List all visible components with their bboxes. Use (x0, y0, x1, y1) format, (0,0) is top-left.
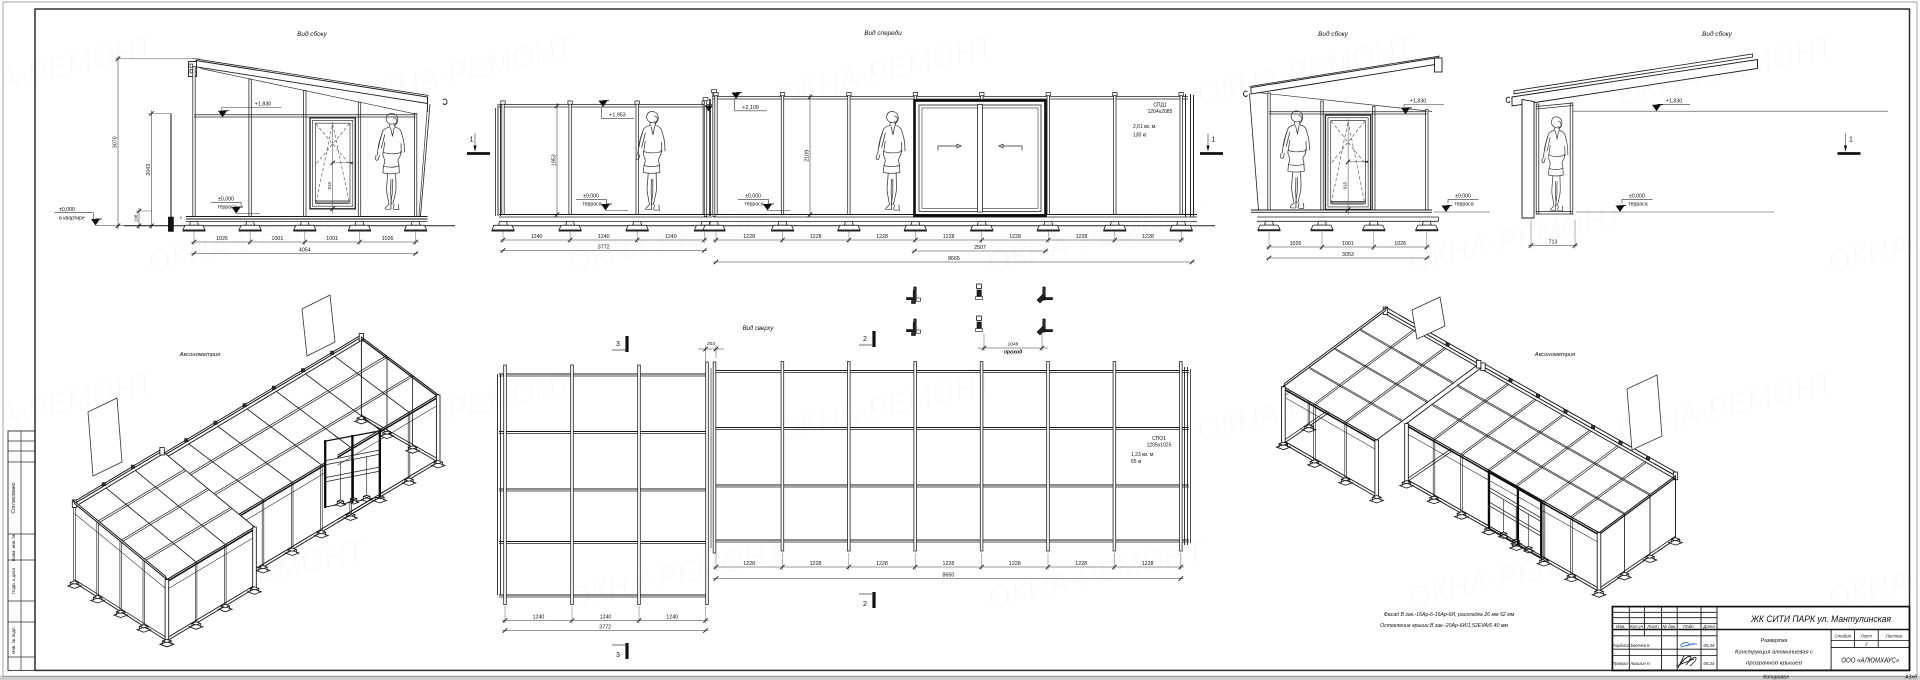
svg-text:А3х6: А3х6 (1904, 674, 1917, 680)
svg-text:1026: 1026 (216, 236, 228, 242)
svg-text:1001: 1001 (1342, 241, 1354, 247)
svg-text:1228: 1228 (1009, 234, 1021, 240)
svg-text:198: 198 (134, 214, 139, 222)
svg-text:Изм.: Изм. (1616, 624, 1625, 629)
svg-text:Подп. и дата: Подп. и дата (11, 568, 16, 594)
svg-text:65 кг: 65 кг (1131, 459, 1142, 465)
svg-text:3772: 3772 (599, 625, 611, 631)
svg-text:Согласовано: Согласовано (11, 482, 17, 513)
svg-text:1205х1025: 1205х1025 (1147, 443, 1172, 449)
svg-text:915: 915 (1343, 181, 1348, 189)
svg-text:±0,000: ±0,000 (218, 196, 234, 202)
svg-text:±0,000: ±0,000 (745, 193, 761, 199)
svg-text:Аксонометрия: Аксонометрия (179, 352, 221, 358)
svg-text:1240: 1240 (666, 615, 678, 621)
svg-text:Вид сбоку: Вид сбоку (1702, 30, 1732, 38)
svg-text:Евсечев К.: Евсечев К. (1631, 643, 1651, 648)
svg-text:1240: 1240 (533, 615, 545, 621)
svg-text:2,61 кв. м.: 2,61 кв. м. (1133, 124, 1157, 130)
svg-text:2109: 2109 (805, 150, 811, 162)
svg-text:3053: 3053 (1342, 252, 1354, 258)
svg-text:1228: 1228 (1142, 561, 1154, 567)
svg-text:терраса: терраса (582, 202, 601, 208)
svg-text:1001: 1001 (326, 236, 338, 242)
svg-text:+1,830: +1,830 (1666, 98, 1683, 104)
svg-text:Лист: Лист (1860, 633, 1873, 638)
svg-text:05.24: 05.24 (1704, 643, 1716, 648)
svg-text:СПО1: СПО1 (1152, 436, 1166, 442)
svg-text:Инв. № подл.: Инв. № подл. (11, 626, 16, 653)
svg-text:терраса: терраса (1454, 202, 1473, 208)
svg-text:Разработал: Разработал (1613, 643, 1629, 648)
svg-text:±0,000: ±0,000 (1629, 193, 1645, 199)
svg-text:прозрачной крышей: прозрачной крышей (1746, 660, 1802, 667)
svg-text:1228: 1228 (943, 561, 955, 567)
svg-text:+1,830: +1,830 (255, 102, 272, 108)
svg-text:2: 2 (863, 601, 867, 608)
svg-text:1204х2085: 1204х2085 (1148, 109, 1173, 115)
svg-text:Стадия: Стадия (1834, 633, 1851, 638)
svg-text:1240: 1240 (665, 234, 677, 240)
svg-text:2: 2 (1864, 642, 1868, 647)
svg-text:1228: 1228 (743, 234, 755, 240)
svg-text:1240: 1240 (531, 234, 543, 240)
svg-text:1228: 1228 (1009, 561, 1021, 567)
svg-text:ЖК СИТИ ПАРК ул. Мантулинская: ЖК СИТИ ПАРК ул. Мантулинская (1750, 614, 1891, 624)
svg-text:Вид сверху: Вид сверху (743, 326, 775, 332)
svg-text:1953: 1953 (552, 154, 558, 166)
svg-text:1048: 1048 (1008, 342, 1019, 348)
svg-text:+1,830: +1,830 (1410, 99, 1427, 105)
svg-text:2043: 2043 (146, 164, 152, 176)
svg-text:СПД1: СПД1 (1153, 103, 1167, 109)
svg-text:№ док.: № док. (1662, 624, 1676, 629)
svg-text:ООО «АЛЮМХАУС»: ООО «АЛЮМХАУС» (1841, 658, 1899, 665)
svg-text:3: 3 (616, 652, 620, 659)
svg-text:1228: 1228 (943, 234, 955, 240)
svg-text:Конструкция алюминиевая с: Конструкция алюминиевая с (1735, 650, 1813, 656)
svg-text:1228: 1228 (1076, 234, 1088, 240)
svg-text:Кол.уч: Кол.уч (1630, 624, 1644, 629)
svg-text:Развертка: Развертка (1761, 638, 1788, 644)
svg-text:3: 3 (616, 341, 620, 348)
svg-text:терраса: терраса (1628, 202, 1647, 208)
svg-text:Вид сбоку: Вид сбоку (1318, 30, 1348, 38)
svg-text:1228: 1228 (743, 561, 755, 567)
svg-text:1228: 1228 (810, 234, 822, 240)
svg-text:1228: 1228 (876, 234, 888, 240)
svg-text:Аксонометрия: Аксонометрия (1534, 352, 1576, 358)
svg-text:±0,000: ±0,000 (583, 193, 599, 199)
svg-text:8650: 8650 (943, 573, 955, 579)
svg-text:915: 915 (327, 182, 332, 190)
svg-text:1240: 1240 (600, 615, 612, 621)
svg-text:1240: 1240 (598, 234, 610, 240)
svg-text:1026: 1026 (1290, 241, 1302, 247)
svg-text:Копировал: Копировал (1763, 674, 1789, 680)
svg-text:1,23 кв. м.: 1,23 кв. м. (1131, 452, 1155, 458)
svg-text:Взам. инв. №: Взам. инв. № (11, 534, 16, 561)
svg-text:Вид сбоку: Вид сбоку (297, 30, 327, 38)
svg-text:Листов: Листов (1885, 633, 1903, 638)
svg-text:1: 1 (1212, 137, 1216, 144)
svg-text:1228: 1228 (876, 561, 888, 567)
svg-text:+1,953: +1,953 (609, 113, 626, 119)
svg-text:1228: 1228 (1075, 561, 1087, 567)
svg-text:1228: 1228 (810, 561, 822, 567)
svg-text:1026: 1026 (1394, 241, 1406, 247)
svg-text:713: 713 (1549, 240, 1558, 246)
svg-text:Подп.: Подп. (1683, 624, 1695, 629)
svg-text:±0,000: ±0,000 (59, 207, 75, 213)
svg-text:3772: 3772 (598, 245, 610, 251)
svg-text:±0,000: ±0,000 (1455, 193, 1471, 199)
svg-text:1228: 1228 (1142, 234, 1154, 240)
svg-text:Остекление крыши В зак.-20Ар-6: Остекление крыши В зак.-20Ар-6И/1,52EVA/… (1380, 623, 1508, 629)
svg-text:терраса: терраса (744, 202, 763, 208)
svg-text:Дата: Дата (1702, 624, 1715, 629)
svg-text:05.24: 05.24 (1704, 661, 1716, 666)
svg-text:4054: 4054 (299, 248, 311, 254)
svg-text:1: 1 (1849, 137, 1853, 144)
svg-text:130 кг: 130 кг (1133, 133, 1147, 139)
svg-text:203: 203 (707, 341, 715, 347)
svg-text:Фасад В зак.-16Ар-6-16Ар-6И, р: Фасад В зак.-16Ар-6-16Ар-6И, раскладка 2… (1384, 612, 1515, 618)
svg-text:проход: проход (1004, 350, 1023, 356)
svg-text:1026: 1026 (382, 236, 394, 242)
svg-text:в квартире: в квартире (59, 215, 85, 221)
svg-text:2507: 2507 (974, 245, 986, 251)
svg-text:8665: 8665 (948, 256, 960, 262)
svg-text:Проверил: Проверил (1613, 661, 1628, 666)
svg-text:+2,109: +2,109 (742, 105, 759, 111)
svg-text:Лист: Лист (1646, 624, 1659, 629)
svg-text:Никилин Н.: Никилин Н. (1631, 661, 1651, 666)
svg-text:2: 2 (863, 336, 867, 343)
svg-text:3070: 3070 (113, 136, 119, 148)
svg-text:Вид спереди: Вид спереди (864, 29, 902, 37)
svg-text:1: 1 (470, 137, 474, 144)
svg-text:1001: 1001 (272, 236, 284, 242)
